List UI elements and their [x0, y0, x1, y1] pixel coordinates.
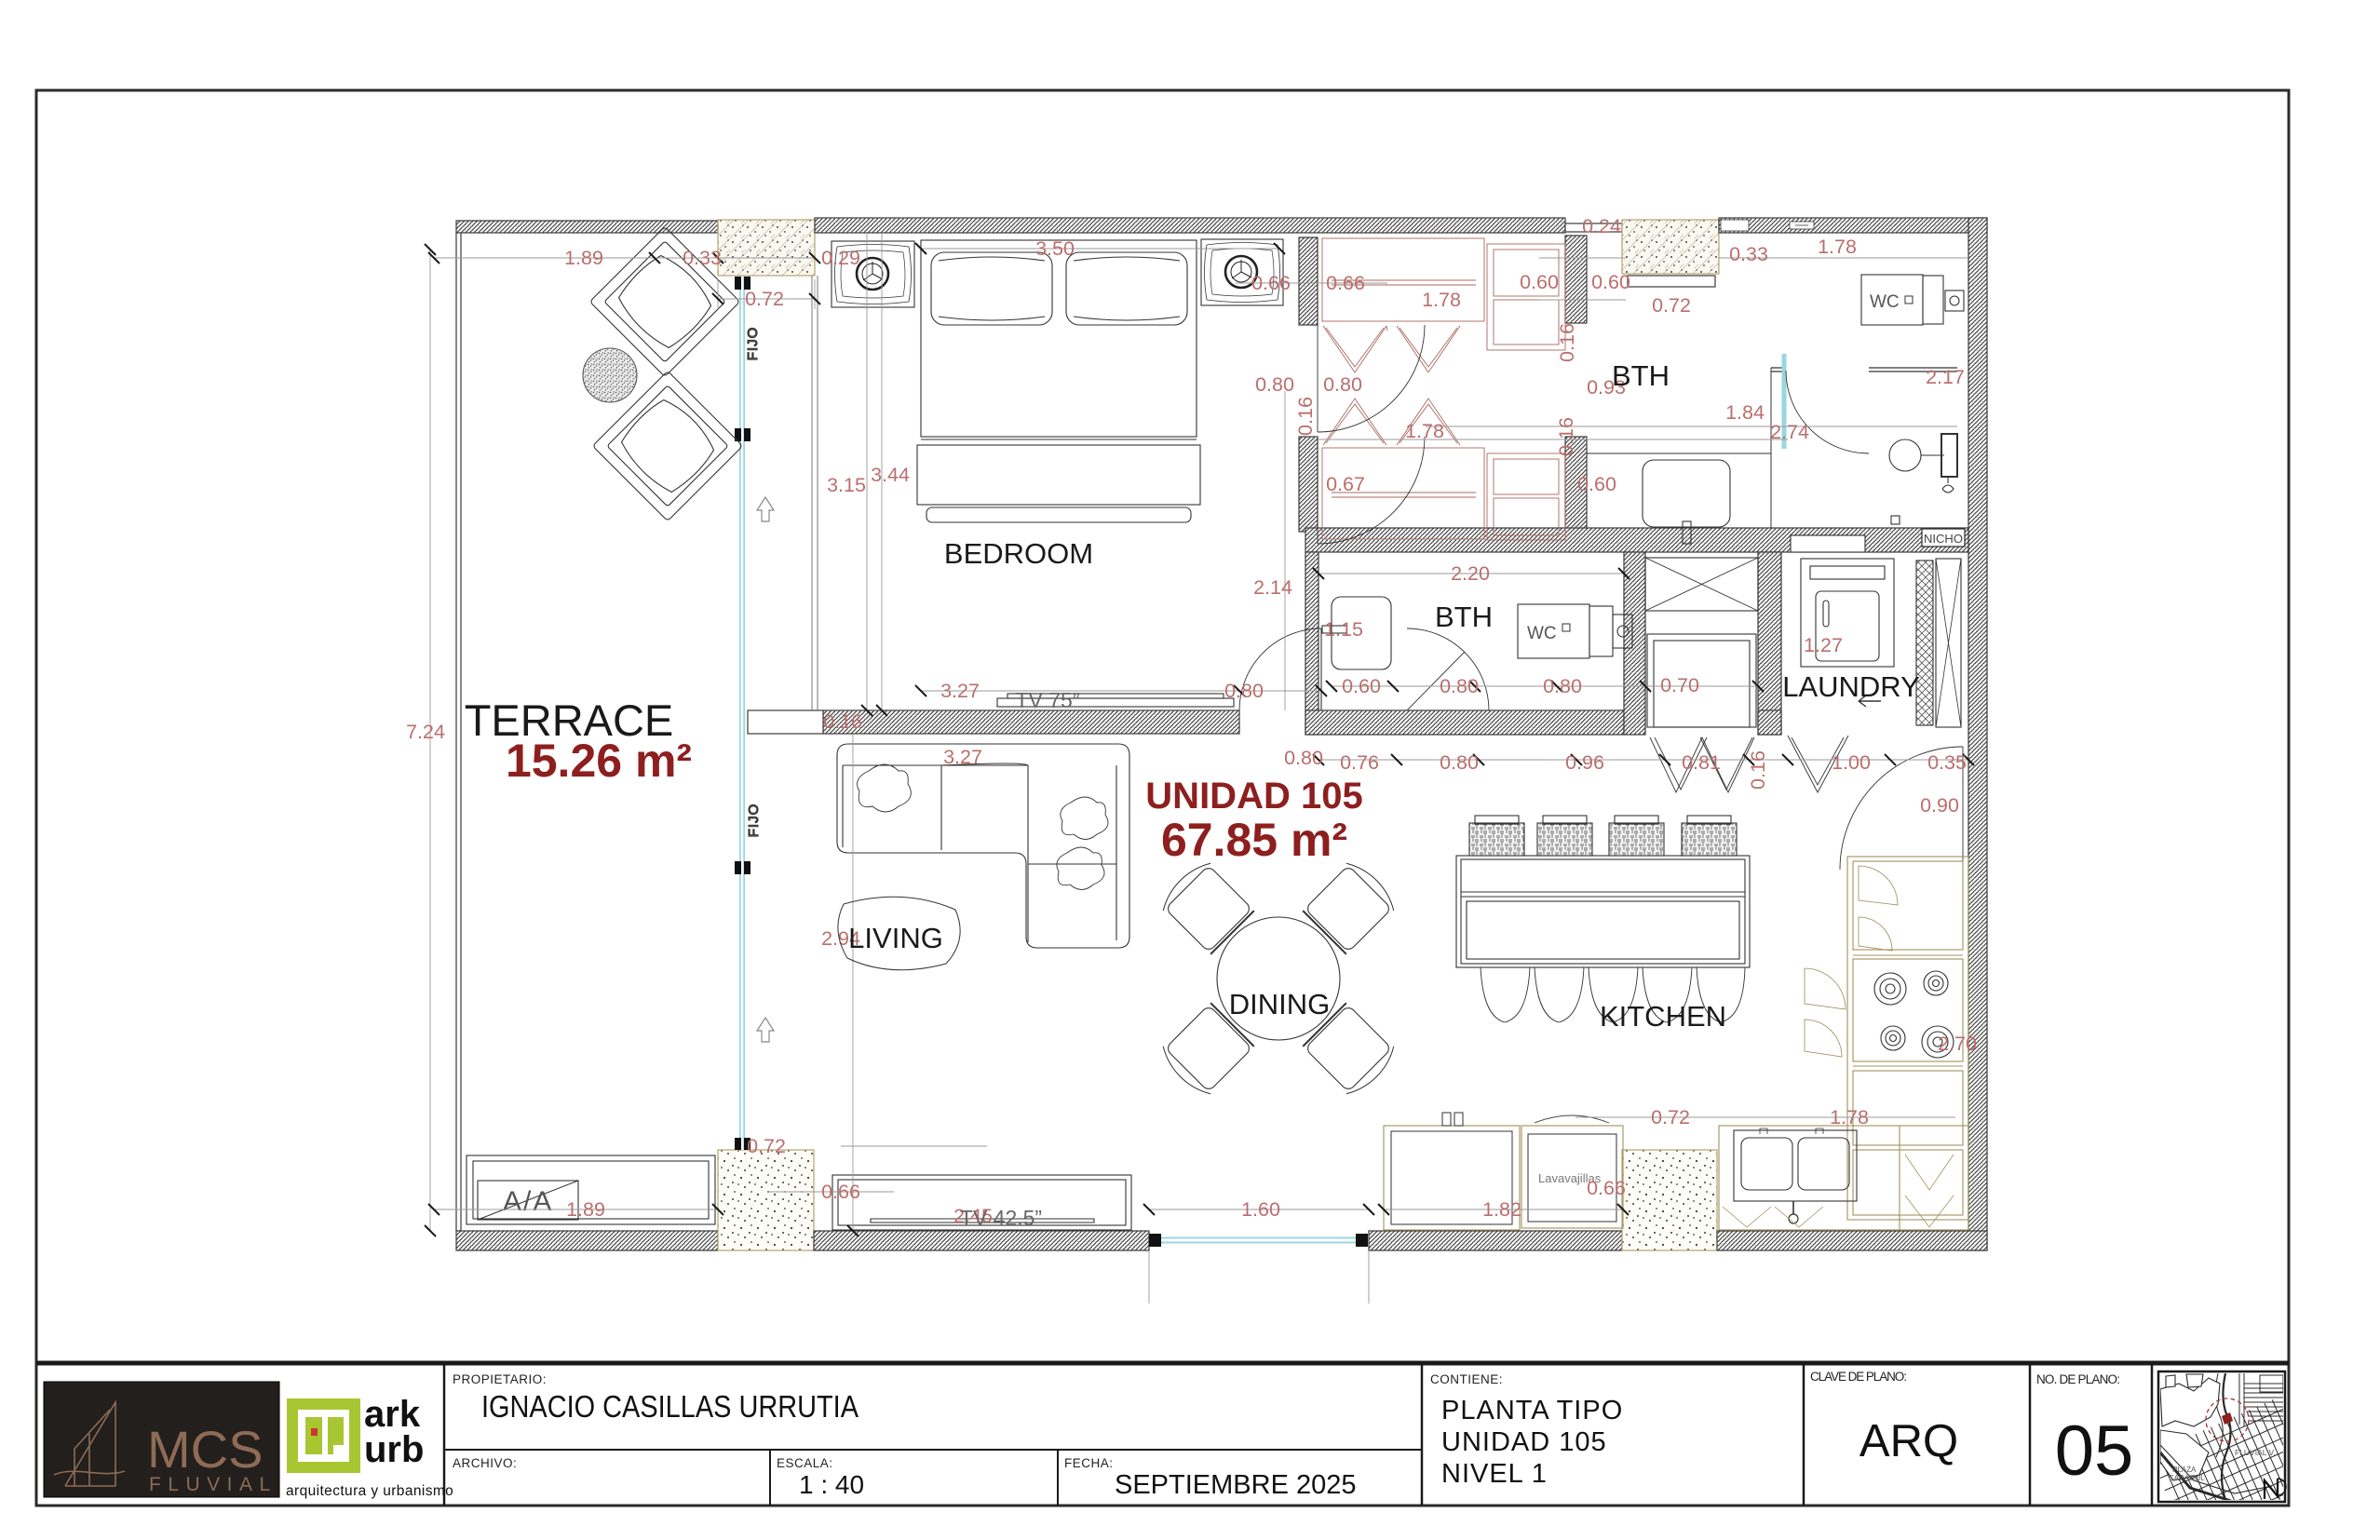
svg-text:BTH: BTH: [1612, 359, 1670, 392]
svg-text:ARQ: ARQ: [1859, 1416, 1958, 1466]
svg-text:3.27: 3.27: [940, 680, 980, 702]
svg-text:LIVING: LIVING: [848, 922, 943, 954]
svg-text:0.66: 0.66: [1326, 272, 1365, 294]
svg-text:2.70: 2.70: [1938, 1033, 1977, 1055]
svg-text:0.80: 0.80: [1543, 675, 1582, 697]
svg-text:0.16: 0.16: [1747, 750, 1769, 790]
svg-text:0.33: 0.33: [683, 247, 722, 269]
svg-text:NO. DE PLANO:: NO. DE PLANO:: [2036, 1372, 2120, 1386]
svg-text:CONTIENE:: CONTIENE:: [1430, 1372, 1503, 1386]
svg-text:KITCHEN: KITCHEN: [1600, 1000, 1726, 1033]
svg-text:FIJO: FIJO: [746, 804, 762, 838]
svg-text:DINING: DINING: [1229, 988, 1331, 1020]
svg-text:0.66: 0.66: [821, 1181, 860, 1203]
svg-text:1.78: 1.78: [1422, 289, 1461, 311]
svg-text:7.24: 7.24: [406, 721, 445, 743]
svg-text:CARACOL: CARACOL: [2169, 1474, 2205, 1482]
svg-text:3.27: 3.27: [943, 746, 982, 768]
svg-text:0.72: 0.72: [1651, 1106, 1690, 1128]
svg-text:TV 75”: TV 75”: [1015, 688, 1079, 712]
svg-text:2.74: 2.74: [1770, 421, 1809, 443]
svg-text:05: 05: [2055, 1412, 2134, 1491]
svg-text:0.80: 0.80: [1224, 680, 1264, 702]
svg-text:PROPIETARIO:: PROPIETARIO:: [453, 1372, 547, 1386]
svg-text:BEDROOM: BEDROOM: [944, 537, 1093, 570]
svg-text:2.20: 2.20: [1451, 562, 1490, 585]
svg-text:1.60: 1.60: [1241, 1198, 1280, 1221]
svg-text:1.78: 1.78: [1405, 420, 1444, 442]
svg-text:0.24: 0.24: [1582, 215, 1621, 237]
svg-text:0.29: 0.29: [821, 247, 860, 269]
svg-text:0.16: 0.16: [1555, 417, 1577, 456]
svg-text:0.60: 0.60: [1520, 271, 1559, 293]
svg-text:0.60: 0.60: [1342, 675, 1381, 697]
svg-text:0.66: 0.66: [1587, 1177, 1626, 1199]
svg-text:FLUVIAL: FLUVIAL: [149, 1474, 277, 1495]
svg-text:NICHO: NICHO: [1924, 532, 1963, 546]
svg-text:0.72: 0.72: [747, 1135, 786, 1157]
svg-text:BTH: BTH: [1435, 601, 1493, 633]
svg-text:1.15: 1.15: [1324, 618, 1363, 641]
svg-text:1.84: 1.84: [1725, 401, 1765, 424]
svg-text:0.96: 0.96: [1565, 751, 1604, 774]
svg-text:0.72: 0.72: [1652, 294, 1691, 317]
svg-text:2.14: 2.14: [1253, 576, 1292, 599]
svg-text:0.80: 0.80: [1323, 373, 1362, 396]
svg-text:1.78: 1.78: [1830, 1106, 1869, 1128]
svg-text:1.89: 1.89: [564, 247, 603, 269]
svg-text:UNIDAD 105: UNIDAD 105: [1145, 776, 1362, 817]
svg-text:UNIDAD 105: UNIDAD 105: [1441, 1427, 1607, 1457]
svg-text:CLAVE DE PLANO:: CLAVE DE PLANO:: [1810, 1370, 1907, 1384]
svg-text:1.27: 1.27: [1804, 634, 1843, 656]
svg-text:0.35: 0.35: [1927, 751, 1967, 774]
svg-text:0.16: 0.16: [1556, 323, 1578, 362]
svg-text:2.17: 2.17: [1926, 366, 1965, 388]
svg-text:0.60: 0.60: [1577, 473, 1616, 495]
svg-text:0.81: 0.81: [1682, 751, 1721, 774]
svg-text:urb: urb: [364, 1429, 424, 1470]
svg-text:3.50: 3.50: [1035, 237, 1075, 260]
svg-text:0.80: 0.80: [1255, 373, 1294, 396]
svg-text:0.67: 0.67: [1326, 473, 1365, 495]
svg-text:1.00: 1.00: [1832, 751, 1871, 774]
svg-text:15.26 m²: 15.26 m²: [506, 735, 692, 787]
svg-text:1.82: 1.82: [1482, 1198, 1521, 1221]
svg-text:0.16: 0.16: [1294, 397, 1317, 436]
svg-text:arquitectura y urbanismo: arquitectura y urbanismo: [286, 1483, 453, 1499]
svg-text:0.60: 0.60: [1591, 271, 1630, 293]
svg-text:FLUVIAL V.: FLUVIAL V.: [2235, 1448, 2276, 1457]
svg-text:IGNACIO CASILLAS URRUTIA: IGNACIO CASILLAS URRUTIA: [481, 1389, 859, 1424]
svg-text:A/A: A/A: [503, 1186, 553, 1217]
svg-text:0.70: 0.70: [1660, 674, 1699, 696]
svg-text:0.76: 0.76: [1340, 751, 1379, 774]
svg-text:ESCALA:: ESCALA:: [777, 1456, 833, 1470]
svg-text:1.89: 1.89: [566, 1198, 605, 1221]
svg-text:LAUNDRY: LAUNDRY: [1782, 670, 1920, 703]
svg-text:NIVEL 1: NIVEL 1: [1441, 1459, 1548, 1489]
svg-text:WC: WC: [1527, 624, 1557, 643]
svg-text:3.15: 3.15: [827, 474, 866, 496]
svg-text:0.66: 0.66: [1251, 272, 1291, 294]
svg-text:WC: WC: [1870, 292, 1900, 312]
svg-text:ARCHIVO:: ARCHIVO:: [453, 1456, 517, 1470]
svg-text:1.78: 1.78: [1818, 236, 1857, 258]
svg-text:0.16: 0.16: [823, 710, 862, 733]
svg-text:67.85 m²: 67.85 m²: [1161, 814, 1347, 866]
svg-text:FIJO: FIJO: [745, 327, 761, 361]
svg-text:0.80: 0.80: [1284, 747, 1323, 769]
svg-text:0.72: 0.72: [745, 288, 784, 310]
svg-text:1 : 40: 1 : 40: [799, 1470, 864, 1499]
svg-text:MCS: MCS: [147, 1420, 263, 1479]
svg-text:3.44: 3.44: [871, 464, 910, 486]
svg-text:0.33: 0.33: [1729, 243, 1768, 265]
svg-text:0.80: 0.80: [1440, 675, 1479, 697]
svg-text:TV 42.5”: TV 42.5”: [960, 1206, 1042, 1230]
svg-text:0.80: 0.80: [1440, 751, 1479, 774]
svg-text:PLAZA: PLAZA: [2172, 1466, 2197, 1474]
svg-text:FECHA:: FECHA:: [1064, 1456, 1114, 1470]
svg-text:SEPTIEMBRE 2025: SEPTIEMBRE 2025: [1115, 1470, 1357, 1500]
svg-text:0.90: 0.90: [1920, 794, 1959, 817]
svg-text:PLANTA TIPO: PLANTA TIPO: [1441, 1396, 1623, 1425]
